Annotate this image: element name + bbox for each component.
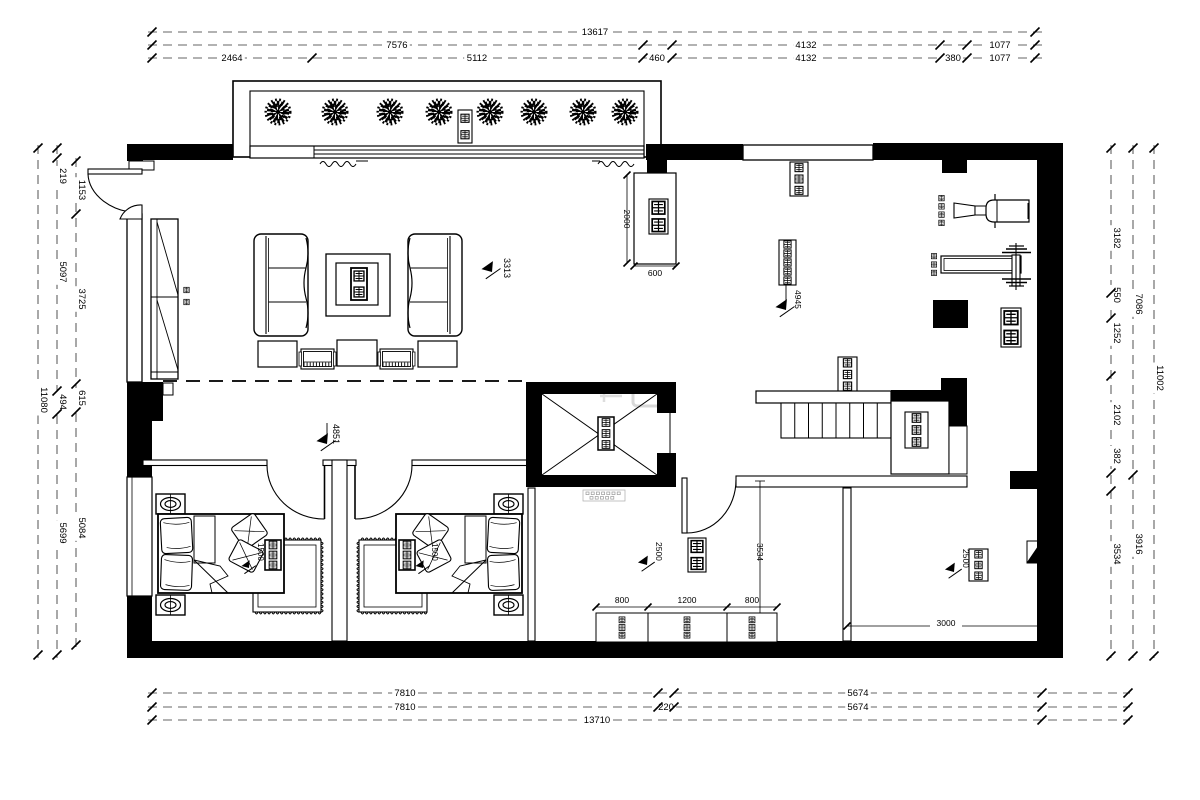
svg-text:380: 380 [945, 53, 961, 64]
svg-text:2500: 2500 [654, 542, 664, 561]
svg-text:1077: 1077 [989, 40, 1010, 51]
svg-text:382: 382 [1111, 448, 1122, 464]
svg-text:3000: 3000 [937, 618, 956, 628]
svg-text:5097: 5097 [57, 261, 68, 282]
svg-text:5674: 5674 [847, 702, 868, 713]
svg-text:13617: 13617 [582, 27, 608, 38]
svg-text:7576: 7576 [386, 40, 407, 51]
svg-text:2500: 2500 [961, 549, 971, 568]
svg-text:615: 615 [76, 390, 87, 406]
svg-text:1500: 1500 [430, 543, 439, 561]
svg-text:800: 800 [745, 595, 759, 605]
svg-text:1153: 1153 [76, 180, 87, 200]
svg-text:550: 550 [1111, 287, 1122, 303]
svg-text:3182: 3182 [1111, 227, 1122, 248]
svg-text:3313: 3313 [502, 258, 512, 278]
svg-text:4945: 4945 [793, 290, 803, 309]
svg-text:5084: 5084 [76, 517, 87, 538]
svg-text:7810: 7810 [394, 688, 415, 699]
svg-text:11002: 11002 [1154, 365, 1165, 391]
svg-text:219: 219 [57, 168, 68, 184]
svg-text:600: 600 [648, 268, 662, 278]
svg-text:4132: 4132 [795, 53, 816, 64]
svg-text:2102: 2102 [1111, 404, 1122, 425]
svg-text:800: 800 [615, 595, 629, 605]
svg-text:3725: 3725 [76, 288, 87, 309]
svg-text:460: 460 [649, 53, 665, 64]
svg-text:5674: 5674 [847, 688, 868, 699]
svg-text:2464: 2464 [221, 53, 242, 64]
svg-text:1200: 1200 [678, 595, 697, 605]
svg-text:5699: 5699 [57, 522, 68, 543]
svg-text:1500: 1500 [256, 543, 265, 561]
svg-text:7086: 7086 [1133, 293, 1144, 314]
svg-text:3534: 3534 [755, 543, 764, 561]
svg-text:3916: 3916 [1133, 533, 1144, 554]
svg-text:13710: 13710 [584, 715, 610, 726]
svg-text:11080: 11080 [38, 387, 49, 413]
svg-text:4132: 4132 [795, 40, 816, 51]
svg-text:5112: 5112 [467, 53, 487, 64]
svg-text:494: 494 [57, 394, 68, 410]
svg-text:3534: 3534 [1111, 543, 1122, 564]
svg-text:4851: 4851 [331, 424, 341, 444]
svg-text:2000: 2000 [622, 210, 632, 229]
svg-text:1077: 1077 [989, 53, 1010, 64]
svg-text:7810: 7810 [394, 702, 415, 713]
svg-text:1252: 1252 [1111, 322, 1122, 343]
